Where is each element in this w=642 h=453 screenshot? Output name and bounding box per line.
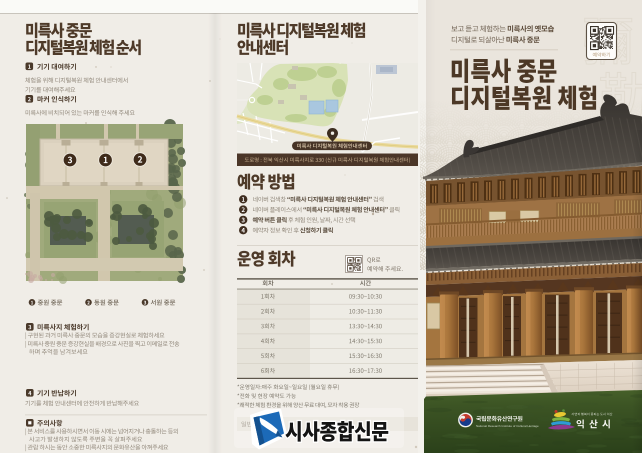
- svg-text:National Research Institute of: National Research Institute of Cultural …: [476, 424, 539, 428]
